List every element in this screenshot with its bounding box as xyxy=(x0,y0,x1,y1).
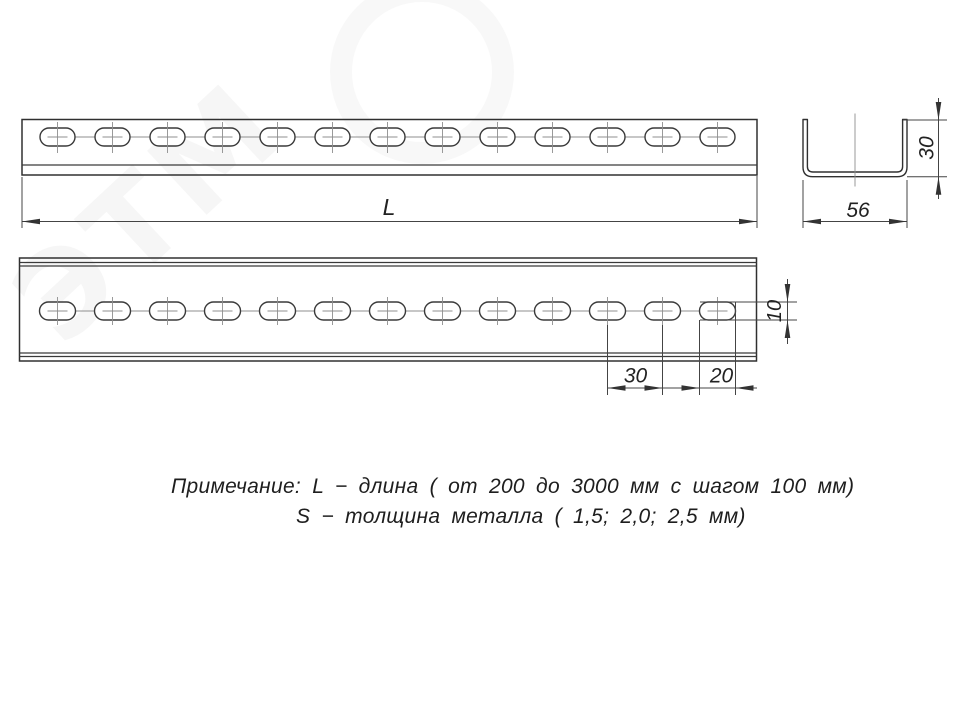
arrowhead-left xyxy=(736,385,754,391)
top-view xyxy=(22,120,757,176)
arrowhead-right xyxy=(682,385,700,391)
hole-spacing-dimension-label: 30 xyxy=(624,365,648,388)
note-line-2: S − толщина металла ( 1,5; 2,0; 2,5 мм) xyxy=(296,505,746,529)
arrowhead-right xyxy=(645,385,663,391)
section-view xyxy=(803,114,907,187)
arrowhead-right xyxy=(889,219,907,225)
hole-length-dimension-label: 20 xyxy=(709,365,734,388)
height-dimension-label: 30 xyxy=(916,136,939,160)
arrowhead-up xyxy=(936,177,942,195)
width-dimension-label: 56 xyxy=(846,199,870,222)
top-view-slots xyxy=(40,122,735,153)
arrowhead-left xyxy=(22,219,40,225)
hole-width-dimension-label: 10 xyxy=(764,300,786,322)
technical-drawing-canvas: L 30 56 xyxy=(0,0,960,720)
note-line-1: Примечание: L − длина ( от 200 до 3000 м… xyxy=(171,475,854,499)
arrowhead-left xyxy=(608,385,626,391)
front-view xyxy=(20,258,757,361)
arrowhead-right xyxy=(739,219,757,225)
height-dimension: 30 xyxy=(903,98,947,199)
arrowhead-left xyxy=(803,219,821,225)
arrowhead-down xyxy=(785,284,791,302)
length-dimension: L xyxy=(22,176,757,228)
arrowhead-down xyxy=(936,102,942,120)
width-dimension: 56 xyxy=(803,180,907,228)
length-dimension-label: L xyxy=(383,194,396,220)
drawing-page: ЭТМ L 30 xyxy=(0,0,960,720)
